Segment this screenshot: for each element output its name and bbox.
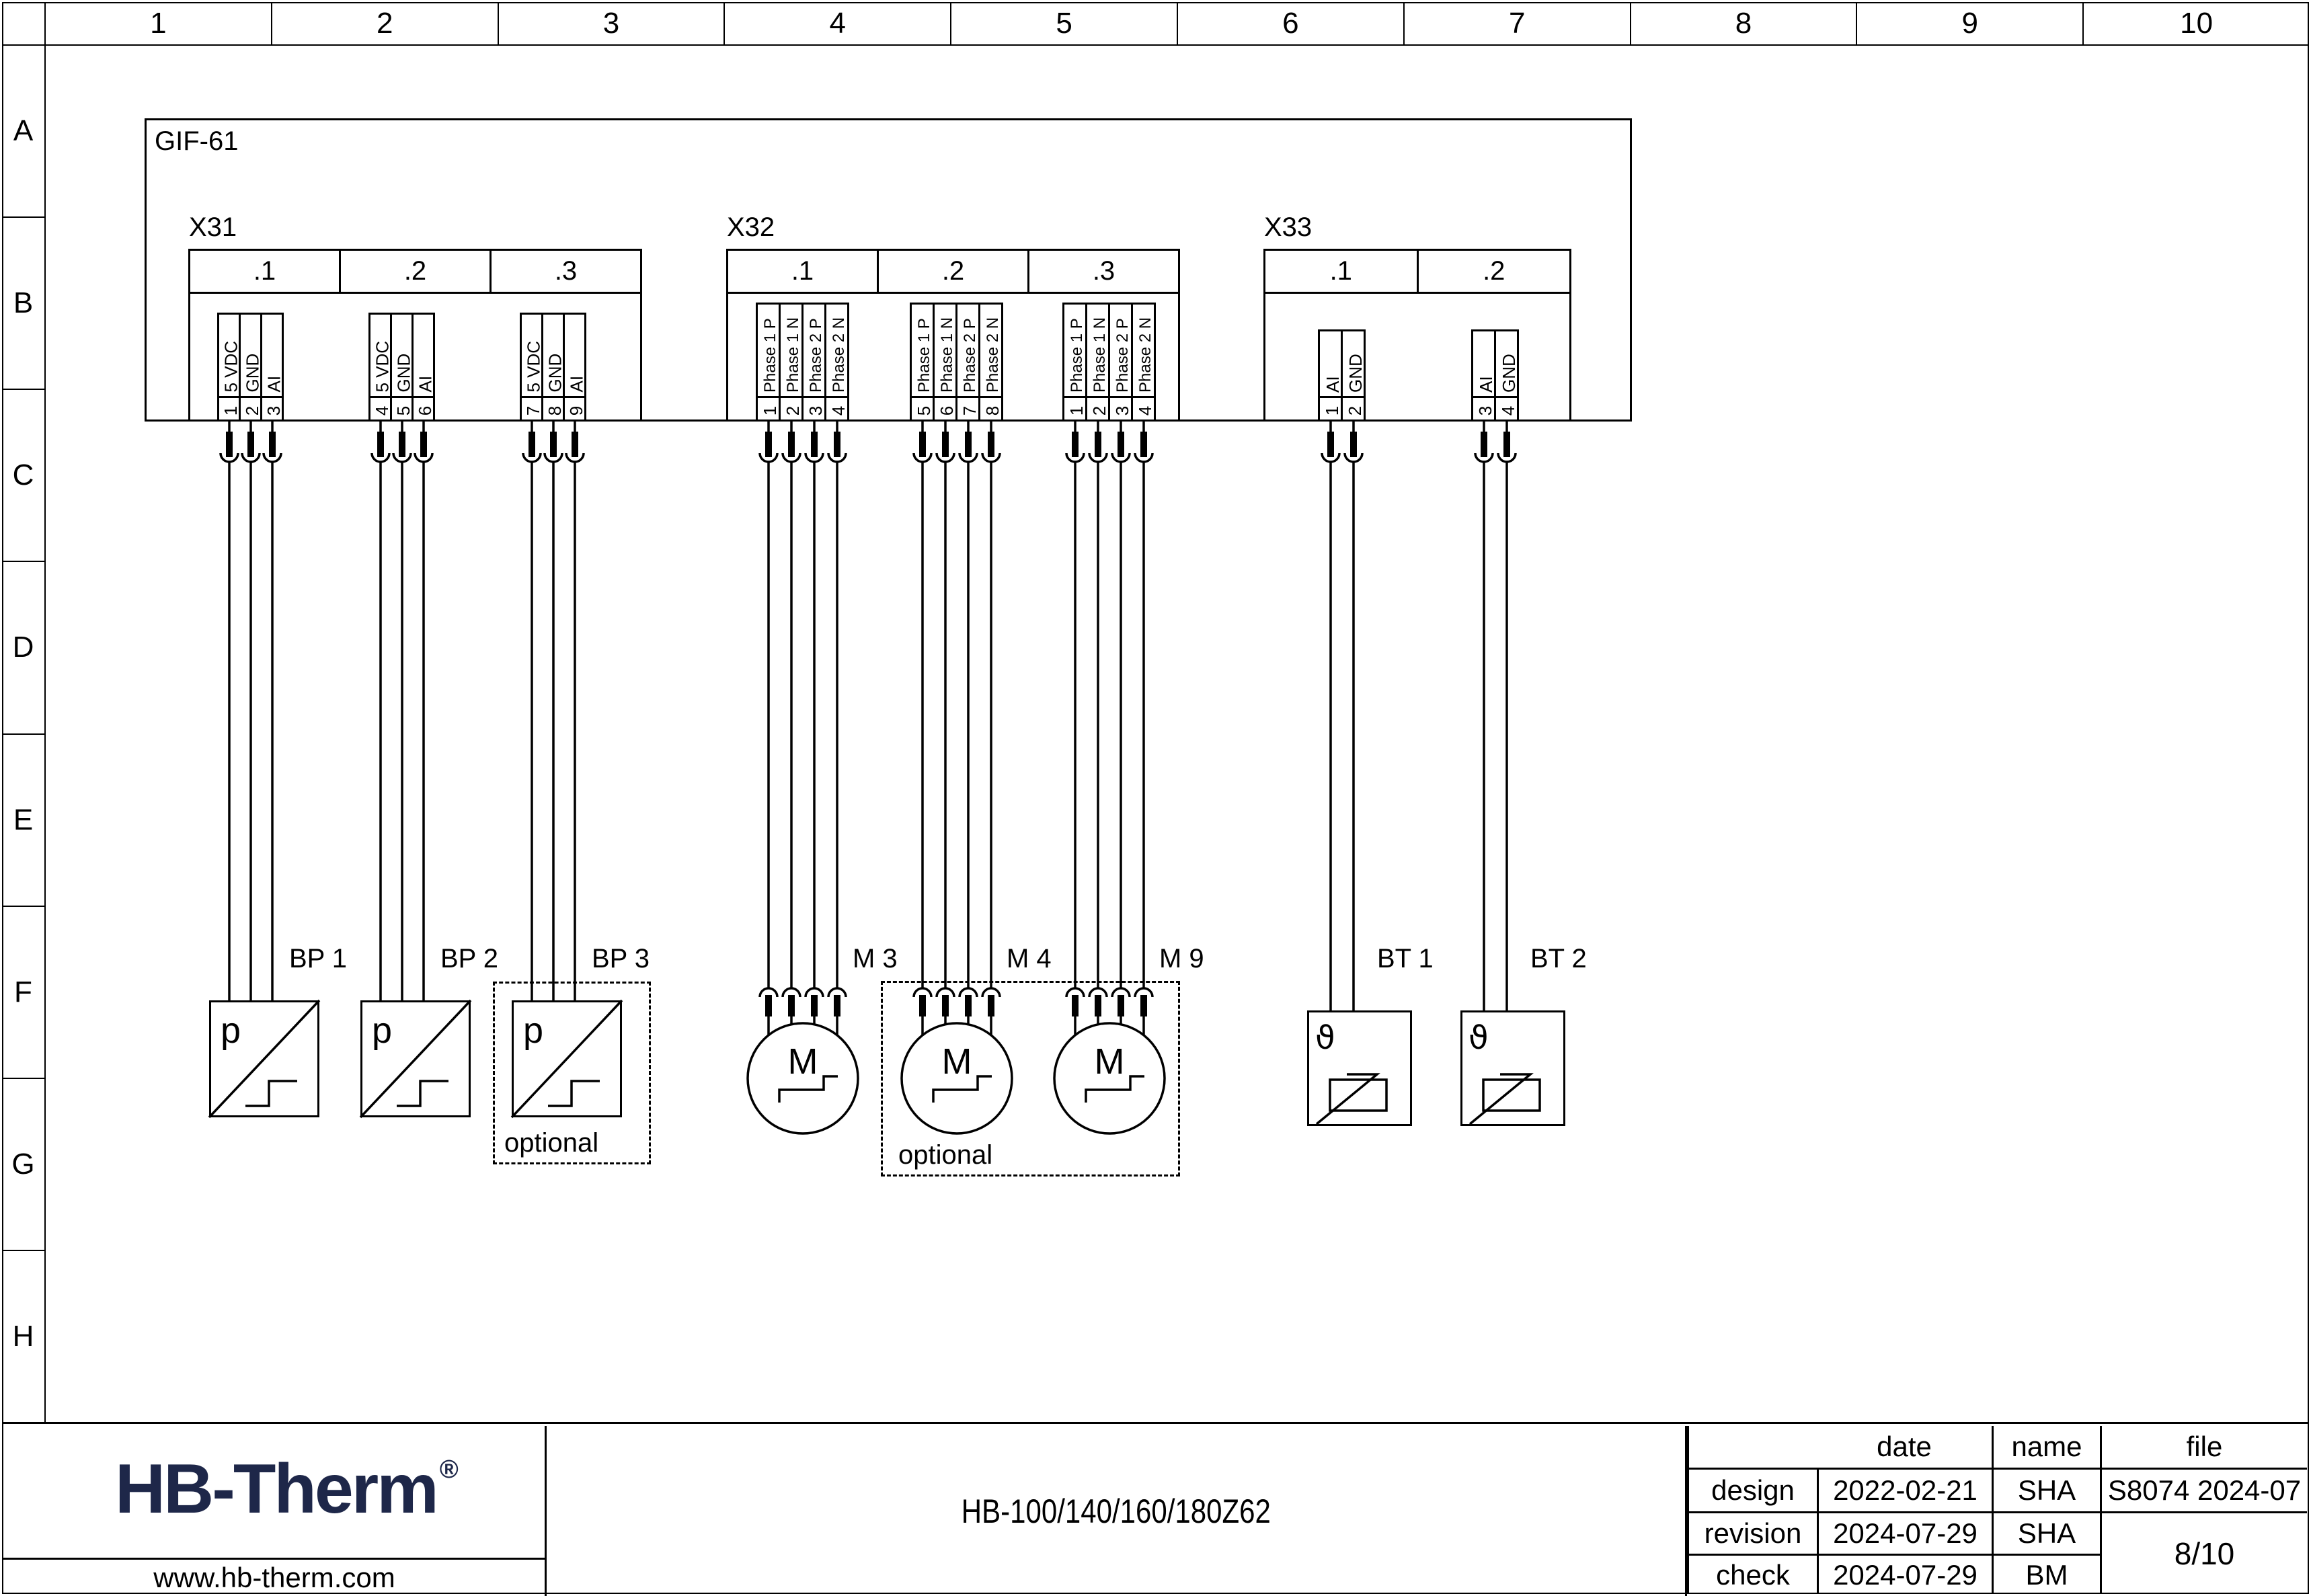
file-number: S8074 2024-07 <box>2108 1474 2301 1507</box>
check-date: 2024-07-29 <box>1833 1559 1977 1591</box>
logo-cell: HB-Therm® www.hb-therm.com <box>2 1426 547 1596</box>
revision-date-cell: 2024-07-29 <box>1817 1511 1992 1554</box>
revision-date: 2024-07-29 <box>1833 1517 1977 1550</box>
pressure-symbol-bp2: p <box>372 1010 392 1051</box>
logo-text: HB-Therm <box>115 1450 437 1528</box>
pressure-symbol-bp3: p <box>523 1010 543 1051</box>
website-text: www.hb-therm.com <box>2 1558 547 1596</box>
thermistor-icons <box>1317 1074 1540 1124</box>
label-bp2: BP 2 <box>440 944 498 975</box>
label-m4: M 4 <box>1007 944 1052 975</box>
symbol-layer <box>0 0 2311 1596</box>
label-bt1: BT 1 <box>1377 944 1434 975</box>
header-name-text: name <box>2011 1431 2082 1463</box>
title-block: HB-Therm® www.hb-therm.com HB-100/140/16… <box>2 1422 2309 1594</box>
design-date: 2022-02-21 <box>1833 1474 1977 1507</box>
page-number-cell: 8/10 <box>2100 1511 2307 1594</box>
optional-label-motors: optional <box>898 1140 992 1171</box>
pressure-symbol-bp1: p <box>221 1010 241 1051</box>
revision-label: revision <box>1705 1517 1802 1550</box>
check-name: BM <box>2026 1559 2068 1591</box>
revision-name-cell: SHA <box>1992 1511 2100 1554</box>
design-name: SHA <box>2018 1474 2076 1507</box>
label-bp1: BP 1 <box>289 944 347 975</box>
table-header-date: date <box>1817 1426 1992 1468</box>
label-bp3: BP 3 <box>592 944 650 975</box>
design-label: design <box>1711 1474 1795 1507</box>
label-m3: M 3 <box>853 944 898 975</box>
motor-symbol-m4: M <box>916 1041 997 1082</box>
registered-mark-icon: ® <box>440 1455 459 1484</box>
label-m9: M 9 <box>1159 944 1204 975</box>
check-name-cell: BM <box>1992 1554 2100 1594</box>
optional-label-bp3: optional <box>504 1128 598 1159</box>
file-number-cell: S8074 2024-07 <box>2100 1468 2307 1511</box>
temperature-symbol-bt2: ϑ <box>1468 1019 1489 1057</box>
document-title-cell: HB-100/140/160/180Z62 <box>547 1426 1687 1596</box>
check-date-cell: 2024-07-29 <box>1817 1554 1992 1594</box>
design-name-cell: SHA <box>1992 1468 2100 1511</box>
label-bt2: BT 2 <box>1530 944 1587 975</box>
check-label: check <box>1716 1559 1790 1591</box>
design-label-cell: design <box>1687 1468 1817 1511</box>
document-title: HB-100/140/160/180Z62 <box>961 1492 1270 1531</box>
schematic-sheet: 12345678910 ABCDEFGH <box>0 0 2311 1596</box>
table-header-name: name <box>1992 1426 2100 1468</box>
table-header-empty <box>1687 1426 1817 1468</box>
hb-therm-logo: HB-Therm® <box>115 1451 459 1527</box>
temperature-symbol-bt1: ϑ <box>1315 1019 1335 1057</box>
motor-symbol-m3: M <box>762 1041 843 1082</box>
header-file-text: file <box>2187 1431 2223 1463</box>
revision-name: SHA <box>2018 1517 2076 1550</box>
motor-symbol-m9: M <box>1069 1041 1150 1082</box>
design-date-cell: 2022-02-21 <box>1817 1468 1992 1511</box>
check-label-cell: check <box>1687 1554 1817 1594</box>
revision-label-cell: revision <box>1687 1511 1817 1554</box>
page-number: 8/10 <box>2175 1535 2235 1572</box>
pressure-sensor-symbols <box>209 1000 622 1117</box>
table-header-file: file <box>2100 1426 2307 1468</box>
header-date-text: date <box>1877 1431 1932 1463</box>
